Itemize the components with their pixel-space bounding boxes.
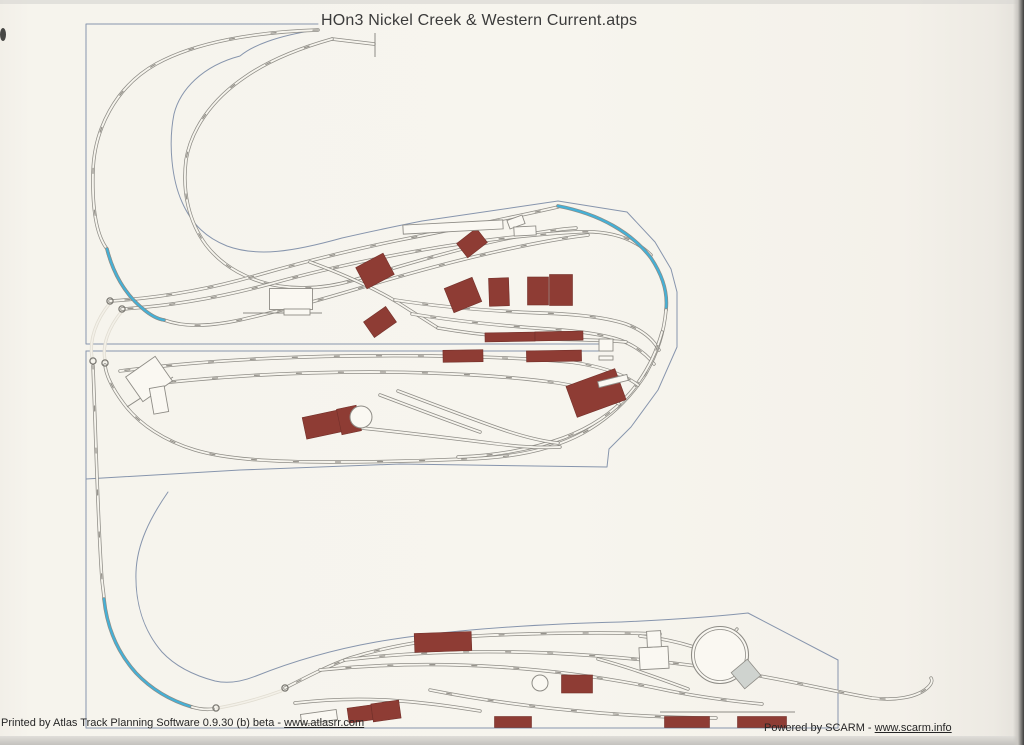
building (371, 700, 401, 722)
structure (514, 226, 536, 236)
footer-powered-by: Powered by SCARM - www.scarm.info (764, 722, 952, 734)
water-tank (532, 675, 548, 691)
footer-printed-by-text: Printed by Atlas Track Planning Software… (1, 717, 284, 729)
track (380, 395, 480, 432)
scarm-url: www.scarm.info (875, 722, 952, 734)
structure (284, 309, 310, 315)
structure (270, 289, 313, 310)
scan-edge-bottom (0, 736, 1024, 745)
track (93, 30, 588, 325)
building (363, 306, 396, 337)
track-blue-segment (104, 599, 192, 707)
structure (149, 386, 168, 414)
building (526, 350, 581, 362)
atlasrr-url: www.atlasrr.com (284, 717, 364, 729)
track (430, 690, 716, 718)
building (550, 275, 573, 306)
track-label-marks (93, 30, 588, 325)
building (665, 717, 710, 728)
track (93, 30, 588, 325)
track (135, 372, 619, 404)
track-label-marks (430, 690, 716, 718)
building (485, 332, 535, 342)
building (443, 350, 483, 363)
track-plan-svg (0, 0, 1024, 745)
ghost-track (91, 303, 110, 358)
track-blue-segment (558, 206, 666, 310)
track-label-marks (135, 372, 619, 404)
structure (599, 339, 613, 351)
footer-printed-by: Printed by Atlas Track Planning Software… (1, 717, 364, 729)
scan-edge-top (0, 0, 1024, 4)
footer-powered-by-text: Powered by SCARM - (764, 722, 875, 734)
building (528, 277, 549, 305)
structure (639, 646, 669, 669)
structure (599, 356, 613, 360)
scan-edge-right (1013, 0, 1024, 745)
plan-title: HOn3 Nickel Creek & Western Current.atps (321, 12, 637, 30)
track-blue-segment (104, 599, 192, 707)
track (430, 690, 716, 718)
track (332, 39, 374, 44)
building (489, 278, 510, 307)
ghost-track (104, 311, 122, 360)
structure (647, 631, 662, 648)
scanned-track-plan-page: HOn3 Nickel Creek & Western Current.atps… (0, 0, 1024, 745)
building (414, 632, 472, 653)
track (135, 372, 619, 404)
water-tank (350, 406, 372, 428)
building (495, 717, 532, 728)
building (562, 675, 593, 693)
building (535, 331, 583, 341)
scan-artifact-fleck (0, 28, 6, 41)
